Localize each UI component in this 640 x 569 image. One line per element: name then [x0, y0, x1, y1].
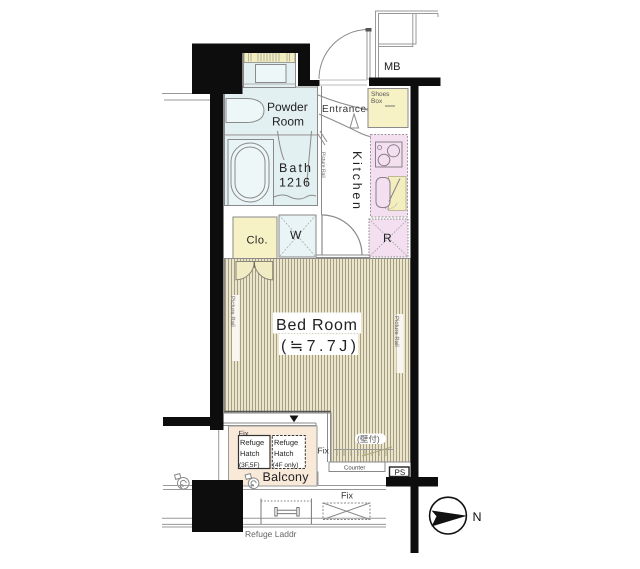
- svg-text:Picture Rail: Picture Rail: [320, 152, 326, 178]
- svg-text:Hatch: Hatch: [240, 449, 260, 458]
- svg-text:Fix: Fix: [341, 491, 353, 501]
- svg-text:PS: PS: [395, 468, 406, 477]
- svg-text:Clo.: Clo.: [247, 235, 268, 247]
- svg-text:Room: Room: [272, 115, 304, 129]
- svg-text:W: W: [290, 228, 302, 242]
- svg-text:(3F,5F): (3F,5F): [239, 462, 260, 469]
- svg-text:Refuge: Refuge: [274, 438, 298, 447]
- svg-text:(壁付): (壁付): [357, 434, 380, 444]
- svg-text:Balcony: Balcony: [263, 470, 310, 484]
- svg-text:Counter: Counter: [344, 465, 365, 472]
- svg-text:Bed Room: Bed Room: [276, 317, 357, 334]
- svg-text:MB: MB: [384, 61, 401, 73]
- svg-text:Box: Box: [371, 98, 383, 105]
- svg-text:Refuge Laddr: Refuge Laddr: [245, 529, 297, 539]
- svg-text:(4F only): (4F only): [273, 462, 299, 469]
- svg-text:N: N: [473, 510, 482, 524]
- svg-text:Fix: Fix: [318, 446, 330, 456]
- svg-text:Picture Rail: Picture Rail: [229, 296, 236, 327]
- svg-text:1216: 1216: [279, 176, 310, 190]
- svg-text:Shoes: Shoes: [371, 91, 390, 98]
- svg-text:Picture Rail: Picture Rail: [393, 316, 400, 347]
- svg-text:Powder: Powder: [267, 100, 308, 114]
- svg-text:(≒7.7J): (≒7.7J): [281, 338, 356, 355]
- svg-text:Hatch: Hatch: [274, 449, 294, 458]
- svg-text:Bath: Bath: [279, 161, 311, 175]
- svg-text:Entrance: Entrance: [322, 104, 366, 115]
- svg-text:Refuge: Refuge: [240, 438, 264, 447]
- svg-text:R: R: [383, 231, 392, 245]
